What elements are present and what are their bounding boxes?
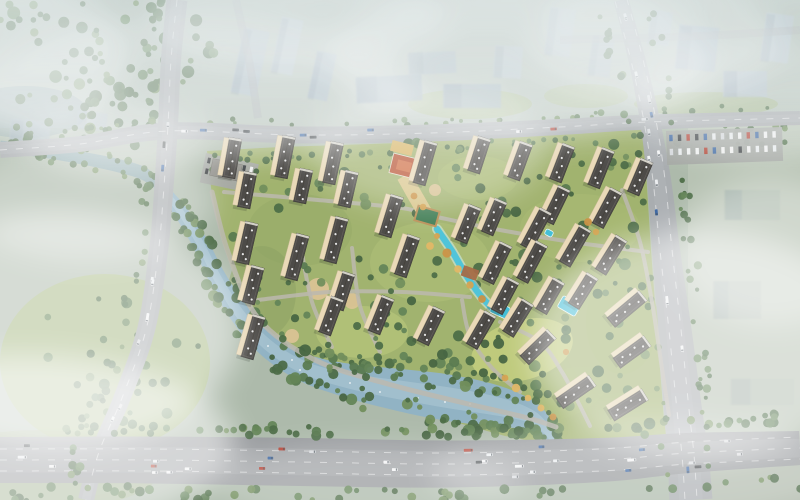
atmosphere [0,0,800,500]
aerial-rendering [0,0,800,500]
masterplan-scene [0,0,800,500]
